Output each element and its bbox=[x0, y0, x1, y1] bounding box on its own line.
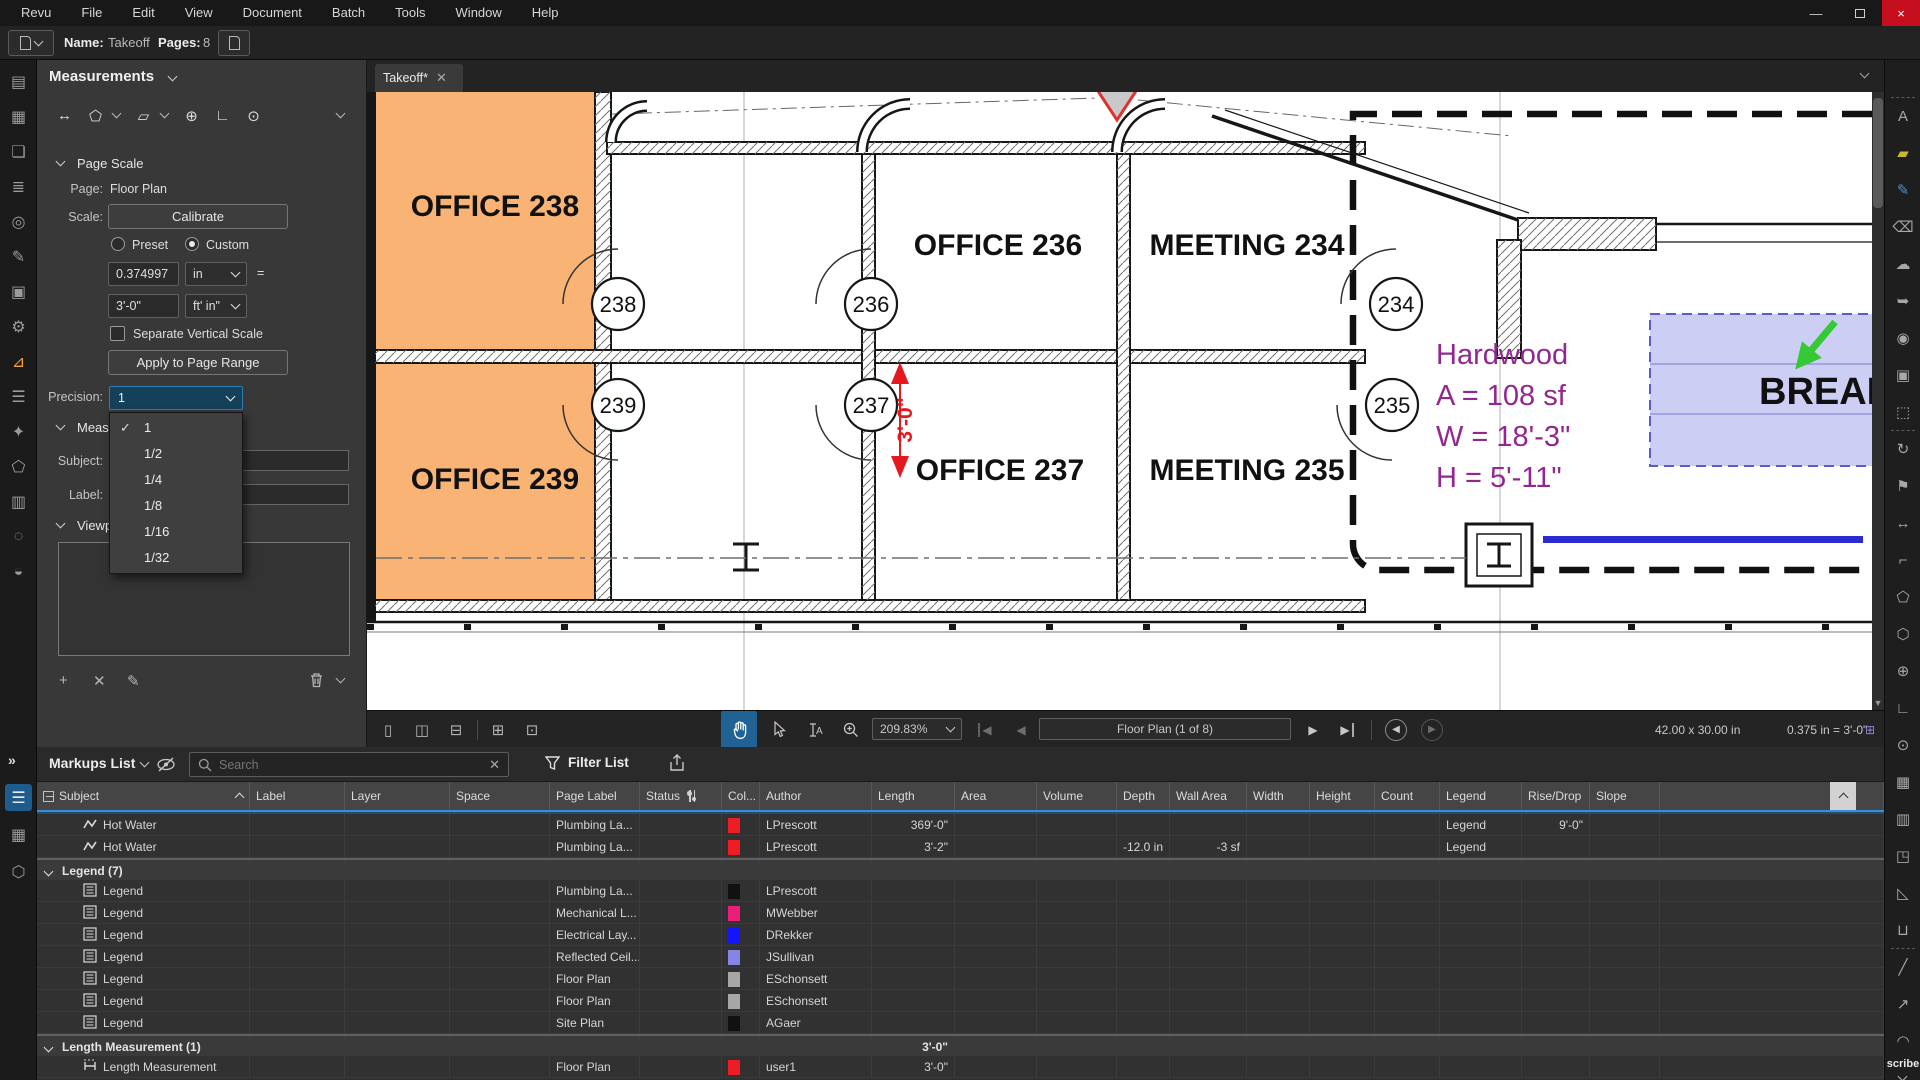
single-page-view-button[interactable]: ▯ bbox=[373, 711, 403, 748]
spaces-icon[interactable]: ◎ bbox=[5, 208, 32, 235]
next-page-button[interactable]: ▶ bbox=[1299, 711, 1327, 748]
eraser-icon[interactable]: ⌫ bbox=[1889, 213, 1917, 241]
col-header-count[interactable]: Count bbox=[1375, 782, 1440, 810]
zoom-tool-button[interactable] bbox=[835, 711, 867, 748]
tool-sets-icon[interactable]: ✦ bbox=[5, 418, 32, 445]
precision-option-1-16[interactable]: 1/16 bbox=[110, 519, 242, 545]
properties-icon[interactable]: ⚙ bbox=[5, 313, 32, 340]
radius-tool-icon[interactable]: ⊙ bbox=[1889, 731, 1917, 759]
panel-title-chevron-icon[interactable] bbox=[168, 72, 178, 82]
cell-value: Floor Plan bbox=[556, 972, 611, 986]
cell-space bbox=[450, 924, 550, 946]
layers-icon[interactable]: ≣ bbox=[5, 173, 32, 200]
cell-rise-drop bbox=[1522, 968, 1590, 990]
col-header-space[interactable]: Space bbox=[450, 782, 550, 810]
table-row[interactable]: Length MeasurementFloor Planuser13'-0" bbox=[37, 1056, 1884, 1078]
cell-value: Plumbing La... bbox=[556, 884, 633, 898]
page-scale-chevron-icon[interactable] bbox=[56, 157, 66, 167]
cell-height bbox=[1310, 836, 1375, 858]
hand-icon bbox=[731, 721, 748, 739]
col-header-page-label[interactable]: Page Label bbox=[550, 782, 640, 810]
pan-tool-button[interactable] bbox=[721, 711, 757, 748]
search-icon[interactable]: ◌ bbox=[5, 523, 32, 550]
col-header-label: Legend bbox=[1446, 789, 1486, 803]
callout-icon[interactable]: ➥ bbox=[1889, 287, 1917, 315]
chevron-down-icon bbox=[946, 723, 956, 733]
group-chevron-icon[interactable] bbox=[44, 866, 54, 876]
tab-close-icon[interactable]: ✕ bbox=[436, 70, 447, 86]
table-row[interactable]: LegendReflected Ceil...JSullivan bbox=[37, 946, 1884, 968]
cell-wall-area bbox=[1170, 1056, 1247, 1078]
drawing-canvas[interactable]: BREAK 2 bbox=[367, 92, 1872, 710]
col-header-width[interactable]: Width bbox=[1247, 782, 1310, 810]
doc-name-value: Takeoff bbox=[108, 26, 150, 60]
cell-depth bbox=[1117, 968, 1170, 990]
color-swatch[interactable] bbox=[728, 906, 740, 921]
cell--blank bbox=[1660, 946, 1884, 968]
col-header-status[interactable]: Status bbox=[640, 782, 722, 810]
count-tool-icon[interactable]: ⚑ bbox=[1889, 472, 1917, 500]
cell-author: ESchonsett bbox=[760, 990, 872, 1012]
cell-value: Floor Plan bbox=[556, 994, 611, 1008]
cell-legend bbox=[1440, 990, 1522, 1012]
measure-diameter-tool-icon[interactable]: ⊕ bbox=[178, 102, 205, 129]
studio-icon[interactable]: ◒ bbox=[5, 558, 32, 585]
right-tool-strip: scribe A▰✎⌫☁➥◉▣⬚↻⚑↔⌐⬠⬡⊕∟⊙▦▥◳◺⊔╱↗◠ bbox=[1884, 60, 1920, 1080]
cell-legend: Legend bbox=[1440, 836, 1522, 858]
tab-takeoff[interactable]: Takeoff* ✕ bbox=[375, 64, 463, 92]
cell-status bbox=[640, 946, 722, 968]
cell-length bbox=[872, 990, 955, 1012]
measurements-section-chevron-icon[interactable] bbox=[56, 421, 66, 431]
status-filter-icon[interactable] bbox=[689, 790, 695, 802]
sort-asc-icon bbox=[235, 793, 245, 803]
cell-wall-area bbox=[1170, 990, 1247, 1012]
arc-tool-icon[interactable]: ◠ bbox=[1889, 1027, 1917, 1055]
col-header-legend[interactable]: Legend bbox=[1440, 782, 1522, 810]
cell-layer bbox=[345, 946, 450, 968]
table-row[interactable]: Hot WaterPlumbing La...LPrescott3'-2"-12… bbox=[37, 836, 1884, 858]
table-row[interactable]: LegendFloor PlanESchonsett bbox=[37, 968, 1884, 990]
cell-status bbox=[640, 990, 722, 1012]
select-text-button[interactable]: A bbox=[799, 711, 831, 748]
separator bbox=[473, 711, 481, 748]
cell-height bbox=[1310, 814, 1375, 836]
color-swatch[interactable] bbox=[728, 884, 740, 899]
tool-chest-icon[interactable]: ▣ bbox=[5, 278, 32, 305]
markups-title-chevron-icon[interactable] bbox=[140, 758, 150, 768]
cell-page-label: Plumbing La... bbox=[550, 814, 640, 836]
document-menu-button[interactable] bbox=[8, 30, 54, 56]
menu-view[interactable]: View bbox=[170, 0, 228, 26]
zoom-level-value: 209.83% bbox=[880, 722, 927, 736]
measurements-panel: Measurements Page Scale Page: Floor Plan… bbox=[37, 60, 367, 747]
length-tool-icon[interactable]: ↔ bbox=[1889, 509, 1917, 537]
cell-length bbox=[872, 946, 955, 968]
tab-list-chevron-icon[interactable] bbox=[1860, 69, 1870, 79]
measure-length-tool-icon[interactable]: ↔ bbox=[51, 102, 78, 129]
page-size-readout: 42.00 x 30.00 in bbox=[1655, 711, 1740, 748]
cell--blank bbox=[1660, 1012, 1884, 1034]
cell-subject: Length Measurement (1) bbox=[37, 1036, 250, 1058]
cell-space bbox=[450, 1036, 550, 1058]
cell-length bbox=[872, 1012, 955, 1034]
cell-rise-drop bbox=[1522, 946, 1590, 968]
cell-subject: Legend bbox=[37, 946, 250, 968]
preset-radio[interactable] bbox=[111, 237, 125, 251]
precision-select[interactable]: 1 bbox=[109, 386, 243, 410]
cell-layer bbox=[345, 924, 450, 946]
door-tag-238: 238 bbox=[600, 292, 637, 317]
cell-layer bbox=[345, 902, 450, 924]
table-group-row[interactable]: Legend (7) bbox=[37, 858, 1884, 880]
precision-option-label: 1/32 bbox=[144, 550, 169, 565]
area-tool-icon[interactable]: ⬠ bbox=[1889, 583, 1917, 611]
collapse-all-icon[interactable] bbox=[43, 791, 54, 802]
snapshot-icon[interactable]: ⬚ bbox=[1889, 398, 1917, 426]
thumbnails-icon[interactable]: ▦ bbox=[5, 103, 32, 130]
cell-height bbox=[1310, 860, 1375, 882]
cell-value: 3'-2" bbox=[924, 840, 948, 854]
cell-space bbox=[450, 880, 550, 902]
room-label-239: OFFICE 239 bbox=[411, 463, 579, 496]
last-page-button[interactable]: ▶ bbox=[1333, 711, 1361, 748]
cell-slope bbox=[1590, 1036, 1660, 1058]
image-icon[interactable]: ▣ bbox=[1889, 361, 1917, 389]
trash-icon[interactable] bbox=[309, 672, 324, 692]
col-header-wall-area[interactable]: Wall Area bbox=[1170, 782, 1247, 810]
bookmarks-icon[interactable]: ❏ bbox=[5, 138, 32, 165]
scale-to-unit-select[interactable]: ft' in" bbox=[185, 294, 247, 318]
stacks-icon[interactable]: ▥ bbox=[5, 488, 32, 515]
cell-layer bbox=[345, 1012, 450, 1034]
cell-depth bbox=[1117, 946, 1170, 968]
line-tool-icon[interactable]: ╱ bbox=[1889, 953, 1917, 981]
precision-option-label: 1/16 bbox=[144, 524, 169, 539]
precision-option-1[interactable]: ✓1 bbox=[110, 415, 242, 441]
calibrate-button[interactable]: Calibrate bbox=[108, 204, 288, 229]
markups-list-icon[interactable]: ☰ bbox=[5, 383, 32, 410]
cell-layer bbox=[345, 836, 450, 858]
precision-option-label: 1 bbox=[144, 420, 151, 435]
cell-area bbox=[955, 902, 1037, 924]
room-label-234: MEETING 234 bbox=[1149, 229, 1344, 262]
precision-option-1-2[interactable]: 1/2 bbox=[110, 441, 242, 467]
cell-slope bbox=[1590, 924, 1660, 946]
cell-author: MWebber bbox=[760, 902, 872, 924]
cell-space bbox=[450, 1012, 550, 1034]
edit-viewport-button[interactable]: ✎ bbox=[127, 672, 140, 690]
close-button[interactable]: × bbox=[1882, 0, 1920, 26]
separate-vertical-label[interactable]: Separate Vertical Scale bbox=[133, 327, 263, 341]
cell-subject: Legend bbox=[37, 968, 250, 990]
precision-value: 1 bbox=[118, 391, 125, 405]
clear-search-icon[interactable]: ✕ bbox=[489, 757, 500, 773]
annotation-height: H = 5'-11" bbox=[1436, 462, 1562, 494]
measure-rotate-icon[interactable]: ↻ bbox=[1889, 435, 1917, 463]
precision-option-1-32[interactable]: 1/32 bbox=[110, 545, 242, 571]
text-box-icon[interactable]: A bbox=[1889, 102, 1917, 130]
col-header-length[interactable]: Length bbox=[872, 782, 955, 810]
separate-vertical-checkbox[interactable] bbox=[110, 326, 125, 341]
stamp-icon[interactable]: ◉ bbox=[1889, 324, 1917, 352]
cell-color bbox=[722, 924, 760, 946]
cell-page-label: Plumbing La... bbox=[550, 836, 640, 858]
cell-volume bbox=[1037, 836, 1117, 858]
minimize-button[interactable]: — bbox=[1794, 0, 1838, 26]
cell-space bbox=[450, 836, 550, 858]
markups-search-box[interactable]: ✕ bbox=[189, 752, 509, 777]
col-header-label[interactable]: Label bbox=[250, 782, 345, 810]
color-swatch[interactable] bbox=[728, 818, 740, 833]
markups-list-view-icon[interactable]: ☰ bbox=[5, 784, 32, 811]
custom-label[interactable]: Custom bbox=[206, 238, 249, 252]
cell-value: Legend bbox=[1446, 840, 1486, 854]
funnel-icon bbox=[545, 756, 560, 770]
scale-value-input[interactable]: 0.374997 bbox=[108, 262, 179, 286]
menu-window[interactable]: Window bbox=[441, 0, 517, 26]
precision-option-1-8[interactable]: 1/8 bbox=[110, 493, 242, 519]
group-chevron-icon[interactable] bbox=[44, 1042, 54, 1052]
page-indicator-field[interactable]: Floor Plan (1 of 8) bbox=[1039, 718, 1291, 740]
menu-tools[interactable]: Tools bbox=[380, 0, 440, 26]
color-swatch[interactable] bbox=[728, 1016, 740, 1031]
expand-panel-button[interactable]: » bbox=[8, 752, 14, 768]
polylength-tool-icon[interactable]: ⌐ bbox=[1889, 546, 1917, 574]
color-swatch[interactable] bbox=[728, 950, 740, 965]
hide-markups-icon[interactable] bbox=[156, 757, 176, 777]
col-header-depth[interactable]: Depth bbox=[1117, 782, 1170, 810]
table-row[interactable]: LegendFloor PlanESchonsett bbox=[37, 990, 1884, 1012]
cell-color bbox=[722, 836, 760, 858]
cloud-icon[interactable]: ☁ bbox=[1889, 250, 1917, 278]
split-view-button[interactable]: ⊟ bbox=[441, 711, 471, 748]
cell-depth bbox=[1117, 1012, 1170, 1034]
cell-layer bbox=[345, 814, 450, 836]
scribe-chevron-icon[interactable] bbox=[1898, 1072, 1908, 1080]
cell-count bbox=[1375, 1056, 1440, 1078]
cell-status bbox=[640, 880, 722, 902]
col-header-label: Label bbox=[256, 789, 285, 803]
cell-volume bbox=[1037, 814, 1117, 836]
color-swatch[interactable] bbox=[728, 1060, 740, 1075]
cell-width bbox=[1247, 860, 1310, 882]
maximize-button[interactable] bbox=[1838, 0, 1882, 26]
cell-area bbox=[955, 990, 1037, 1012]
model-3d-icon[interactable]: ⬡ bbox=[5, 858, 32, 885]
perimeter-tool-icon[interactable]: ⬡ bbox=[1889, 620, 1917, 648]
select-tool-button[interactable] bbox=[763, 711, 795, 748]
table-row[interactable]: LegendSite PlanAGaer bbox=[37, 1012, 1884, 1034]
wall-area-tool-icon[interactable]: ▥ bbox=[1889, 805, 1917, 833]
cell-color bbox=[722, 968, 760, 990]
col-header-label: Wall Area bbox=[1176, 789, 1227, 803]
cell-space bbox=[450, 946, 550, 968]
menu-revu[interactable]: Revu bbox=[6, 0, 66, 26]
new-page-icon bbox=[229, 36, 240, 50]
width-tool-icon[interactable]: ⊔ bbox=[1889, 916, 1917, 944]
hot-water-line-markup[interactable] bbox=[1543, 536, 1863, 543]
cell-label bbox=[250, 902, 345, 924]
markup-type-polyline-icon bbox=[83, 839, 97, 856]
precision-option-label: 1/2 bbox=[144, 446, 162, 461]
cell-value: Plumbing La... bbox=[556, 840, 633, 854]
cell-legend bbox=[1440, 860, 1522, 882]
pen-icon[interactable]: ✎ bbox=[1889, 176, 1917, 204]
room-label-235: MEETING 235 bbox=[1149, 454, 1344, 487]
color-swatch[interactable] bbox=[728, 994, 740, 1009]
table-row[interactable]: LegendElectrical Lay...DRekker bbox=[37, 924, 1884, 946]
table-row[interactable]: Hot WaterPlumbing La...LPrescott369'-0"L… bbox=[37, 814, 1884, 836]
markup-type-length-icon bbox=[83, 1059, 97, 1076]
scrollbar-thumb[interactable] bbox=[1873, 98, 1883, 208]
col-header-height[interactable]: Height bbox=[1310, 782, 1375, 810]
col-header-label: Space bbox=[456, 789, 490, 803]
trash-options-chevron-icon[interactable] bbox=[336, 674, 346, 684]
col-header-layer[interactable]: Layer bbox=[345, 782, 450, 810]
apply-page-range-button[interactable]: Apply to Page Range bbox=[108, 350, 288, 375]
col-header-subject[interactable]: Subject bbox=[37, 782, 250, 810]
measure-area-tool-icon[interactable]: ⬠ bbox=[82, 102, 109, 129]
first-page-button[interactable]: ◀ bbox=[971, 711, 999, 748]
table-rows: Hot WaterPlumbing La...LPrescott369'-0"L… bbox=[37, 810, 1884, 1080]
cell-layer bbox=[345, 1056, 450, 1078]
next-view-button[interactable]: ▶ bbox=[1417, 711, 1447, 748]
split-document-button[interactable]: ⊞ bbox=[483, 711, 513, 748]
cell-depth bbox=[1117, 902, 1170, 924]
table-row[interactable]: LegendMechanical L...MWebber bbox=[37, 902, 1884, 924]
measure-volume-tool-icon[interactable]: ▱ bbox=[130, 102, 157, 129]
cell-page-label: Floor Plan bbox=[550, 968, 640, 990]
col-header-label: Col... bbox=[728, 789, 756, 803]
document-toolbar: Name: Takeoff Pages: 8 bbox=[0, 26, 1920, 60]
cell-length bbox=[872, 880, 955, 902]
cell-area bbox=[955, 946, 1037, 968]
cell-depth: -12.0 in bbox=[1117, 836, 1170, 858]
measurements-panel-icon[interactable]: ⊿ bbox=[5, 348, 32, 375]
cell-value: Site Plan bbox=[556, 1016, 604, 1030]
tool-chevron-icon[interactable] bbox=[112, 109, 122, 119]
search-input[interactable] bbox=[219, 758, 482, 772]
document-tab-bar: Takeoff* ✕ bbox=[367, 60, 1884, 92]
shapes-icon[interactable]: ⬠ bbox=[5, 453, 32, 480]
cell-wall-area bbox=[1170, 924, 1247, 946]
cell-volume bbox=[1037, 968, 1117, 990]
color-swatch[interactable] bbox=[728, 840, 740, 855]
page-indicator-value: Floor Plan (1 of 8) bbox=[1117, 722, 1213, 736]
markups-panel-icon[interactable]: ✎ bbox=[5, 243, 32, 270]
delete-viewport-button[interactable]: ✕ bbox=[93, 672, 106, 690]
slope-tool-icon[interactable]: ◺ bbox=[1889, 879, 1917, 907]
preset-label[interactable]: Preset bbox=[132, 238, 168, 252]
new-document-button[interactable] bbox=[218, 30, 250, 56]
col-header-col[interactable]: Col... bbox=[722, 782, 760, 810]
door-tag-235: 235 bbox=[1374, 393, 1411, 418]
cell-status bbox=[640, 924, 722, 946]
custom-radio[interactable] bbox=[185, 237, 199, 251]
menu-file[interactable]: File bbox=[66, 0, 117, 26]
col-header-slope[interactable]: Slope bbox=[1590, 782, 1660, 810]
col-header-rise-drop[interactable]: Rise/Drop bbox=[1522, 782, 1590, 810]
facing-pages-view-button[interactable]: ◫ bbox=[407, 711, 437, 748]
canvas-scrollbar[interactable]: ▼ bbox=[1872, 92, 1884, 710]
cutout-tool-icon[interactable]: ◳ bbox=[1889, 842, 1917, 870]
scroll-down-icon[interactable]: ▼ bbox=[1872, 698, 1884, 708]
cell-legend bbox=[1440, 1056, 1522, 1078]
length-measurement-markup[interactable]: 3'-0" bbox=[891, 362, 917, 478]
volume-tool-icon[interactable]: ▦ bbox=[1889, 768, 1917, 796]
table-row[interactable]: LegendPlumbing La...LPrescott bbox=[37, 880, 1884, 902]
table-group-row[interactable]: Length Measurement (1)3'-0" bbox=[37, 1034, 1884, 1056]
menu-help[interactable]: Help bbox=[517, 0, 574, 26]
tools-overflow-chevron-icon[interactable] bbox=[336, 109, 346, 119]
scale-indicator-icon[interactable]: ⊞ bbox=[1859, 711, 1881, 748]
zoom-level-select[interactable]: 209.83% bbox=[872, 718, 962, 740]
previous-page-button[interactable]: ◀ bbox=[1007, 711, 1035, 748]
break-room-markup[interactable]: BREAK bbox=[1650, 314, 1872, 466]
cell-slope bbox=[1590, 1056, 1660, 1078]
takeoff-annotation-markup[interactable]: Hardwood A = 108 sf W = 18'-3" H = 5'-11… bbox=[1436, 339, 1570, 494]
color-swatch[interactable] bbox=[728, 928, 740, 943]
cell-slope bbox=[1590, 968, 1660, 990]
add-viewport-button[interactable]: + bbox=[59, 672, 68, 689]
cell-label bbox=[250, 836, 345, 858]
export-list-icon[interactable] bbox=[669, 754, 685, 777]
cell-area bbox=[955, 880, 1037, 902]
scale-to-input[interactable]: 3'-0" bbox=[108, 294, 179, 318]
scale-unit-select[interactable]: in bbox=[185, 262, 247, 286]
menu-document[interactable]: Document bbox=[228, 0, 317, 26]
tool-chevron-icon[interactable] bbox=[160, 109, 170, 119]
diameter-tool-icon[interactable]: ⊕ bbox=[1889, 657, 1917, 685]
scribe-label[interactable]: scribe bbox=[1885, 1058, 1920, 1070]
cell-author: user1 bbox=[760, 1056, 872, 1078]
cell-legend bbox=[1440, 902, 1522, 924]
angle-tool-icon[interactable]: ∟ bbox=[1889, 694, 1917, 722]
search-icon bbox=[198, 758, 212, 772]
col-header-label: Depth bbox=[1123, 789, 1155, 803]
precision-option-1-4[interactable]: 1/4 bbox=[110, 467, 242, 493]
menu-edit[interactable]: Edit bbox=[117, 0, 169, 26]
viewports-section-chevron-icon[interactable] bbox=[56, 519, 66, 529]
table-scroll-up-button[interactable] bbox=[1830, 782, 1856, 810]
fit-page-button[interactable]: ⊡ bbox=[517, 711, 547, 748]
measure-radius-tool-icon[interactable]: ⊙ bbox=[240, 102, 267, 129]
file-access-icon[interactable]: ▤ bbox=[5, 68, 32, 95]
menu-batch[interactable]: Batch bbox=[317, 0, 380, 26]
previous-view-button[interactable]: ◀ bbox=[1381, 711, 1411, 748]
cell-width bbox=[1247, 990, 1310, 1012]
cell-space bbox=[450, 814, 550, 836]
cell-page-label: Floor Plan bbox=[550, 1056, 640, 1078]
cell-color bbox=[722, 860, 760, 882]
highlight-icon[interactable]: ▰ bbox=[1889, 139, 1917, 167]
filter-list-button[interactable]: Filter List bbox=[545, 755, 629, 770]
arrow-tool-icon[interactable]: ↗ bbox=[1889, 990, 1917, 1018]
col-header-volume[interactable]: Volume bbox=[1037, 782, 1117, 810]
thumbnails-view-icon[interactable]: ▦ bbox=[5, 821, 32, 848]
col-header-area[interactable]: Area bbox=[955, 782, 1037, 810]
color-swatch[interactable] bbox=[728, 972, 740, 987]
cell-label bbox=[250, 924, 345, 946]
cell-value: 9'-0" bbox=[1559, 818, 1583, 832]
col-header-author[interactable]: Author bbox=[760, 782, 872, 810]
cell-depth bbox=[1117, 860, 1170, 882]
cell-wall-area bbox=[1170, 860, 1247, 882]
measure-angle-tool-icon[interactable]: ∟ bbox=[209, 102, 236, 129]
cell-rise-drop bbox=[1522, 902, 1590, 924]
cell-depth bbox=[1117, 880, 1170, 902]
